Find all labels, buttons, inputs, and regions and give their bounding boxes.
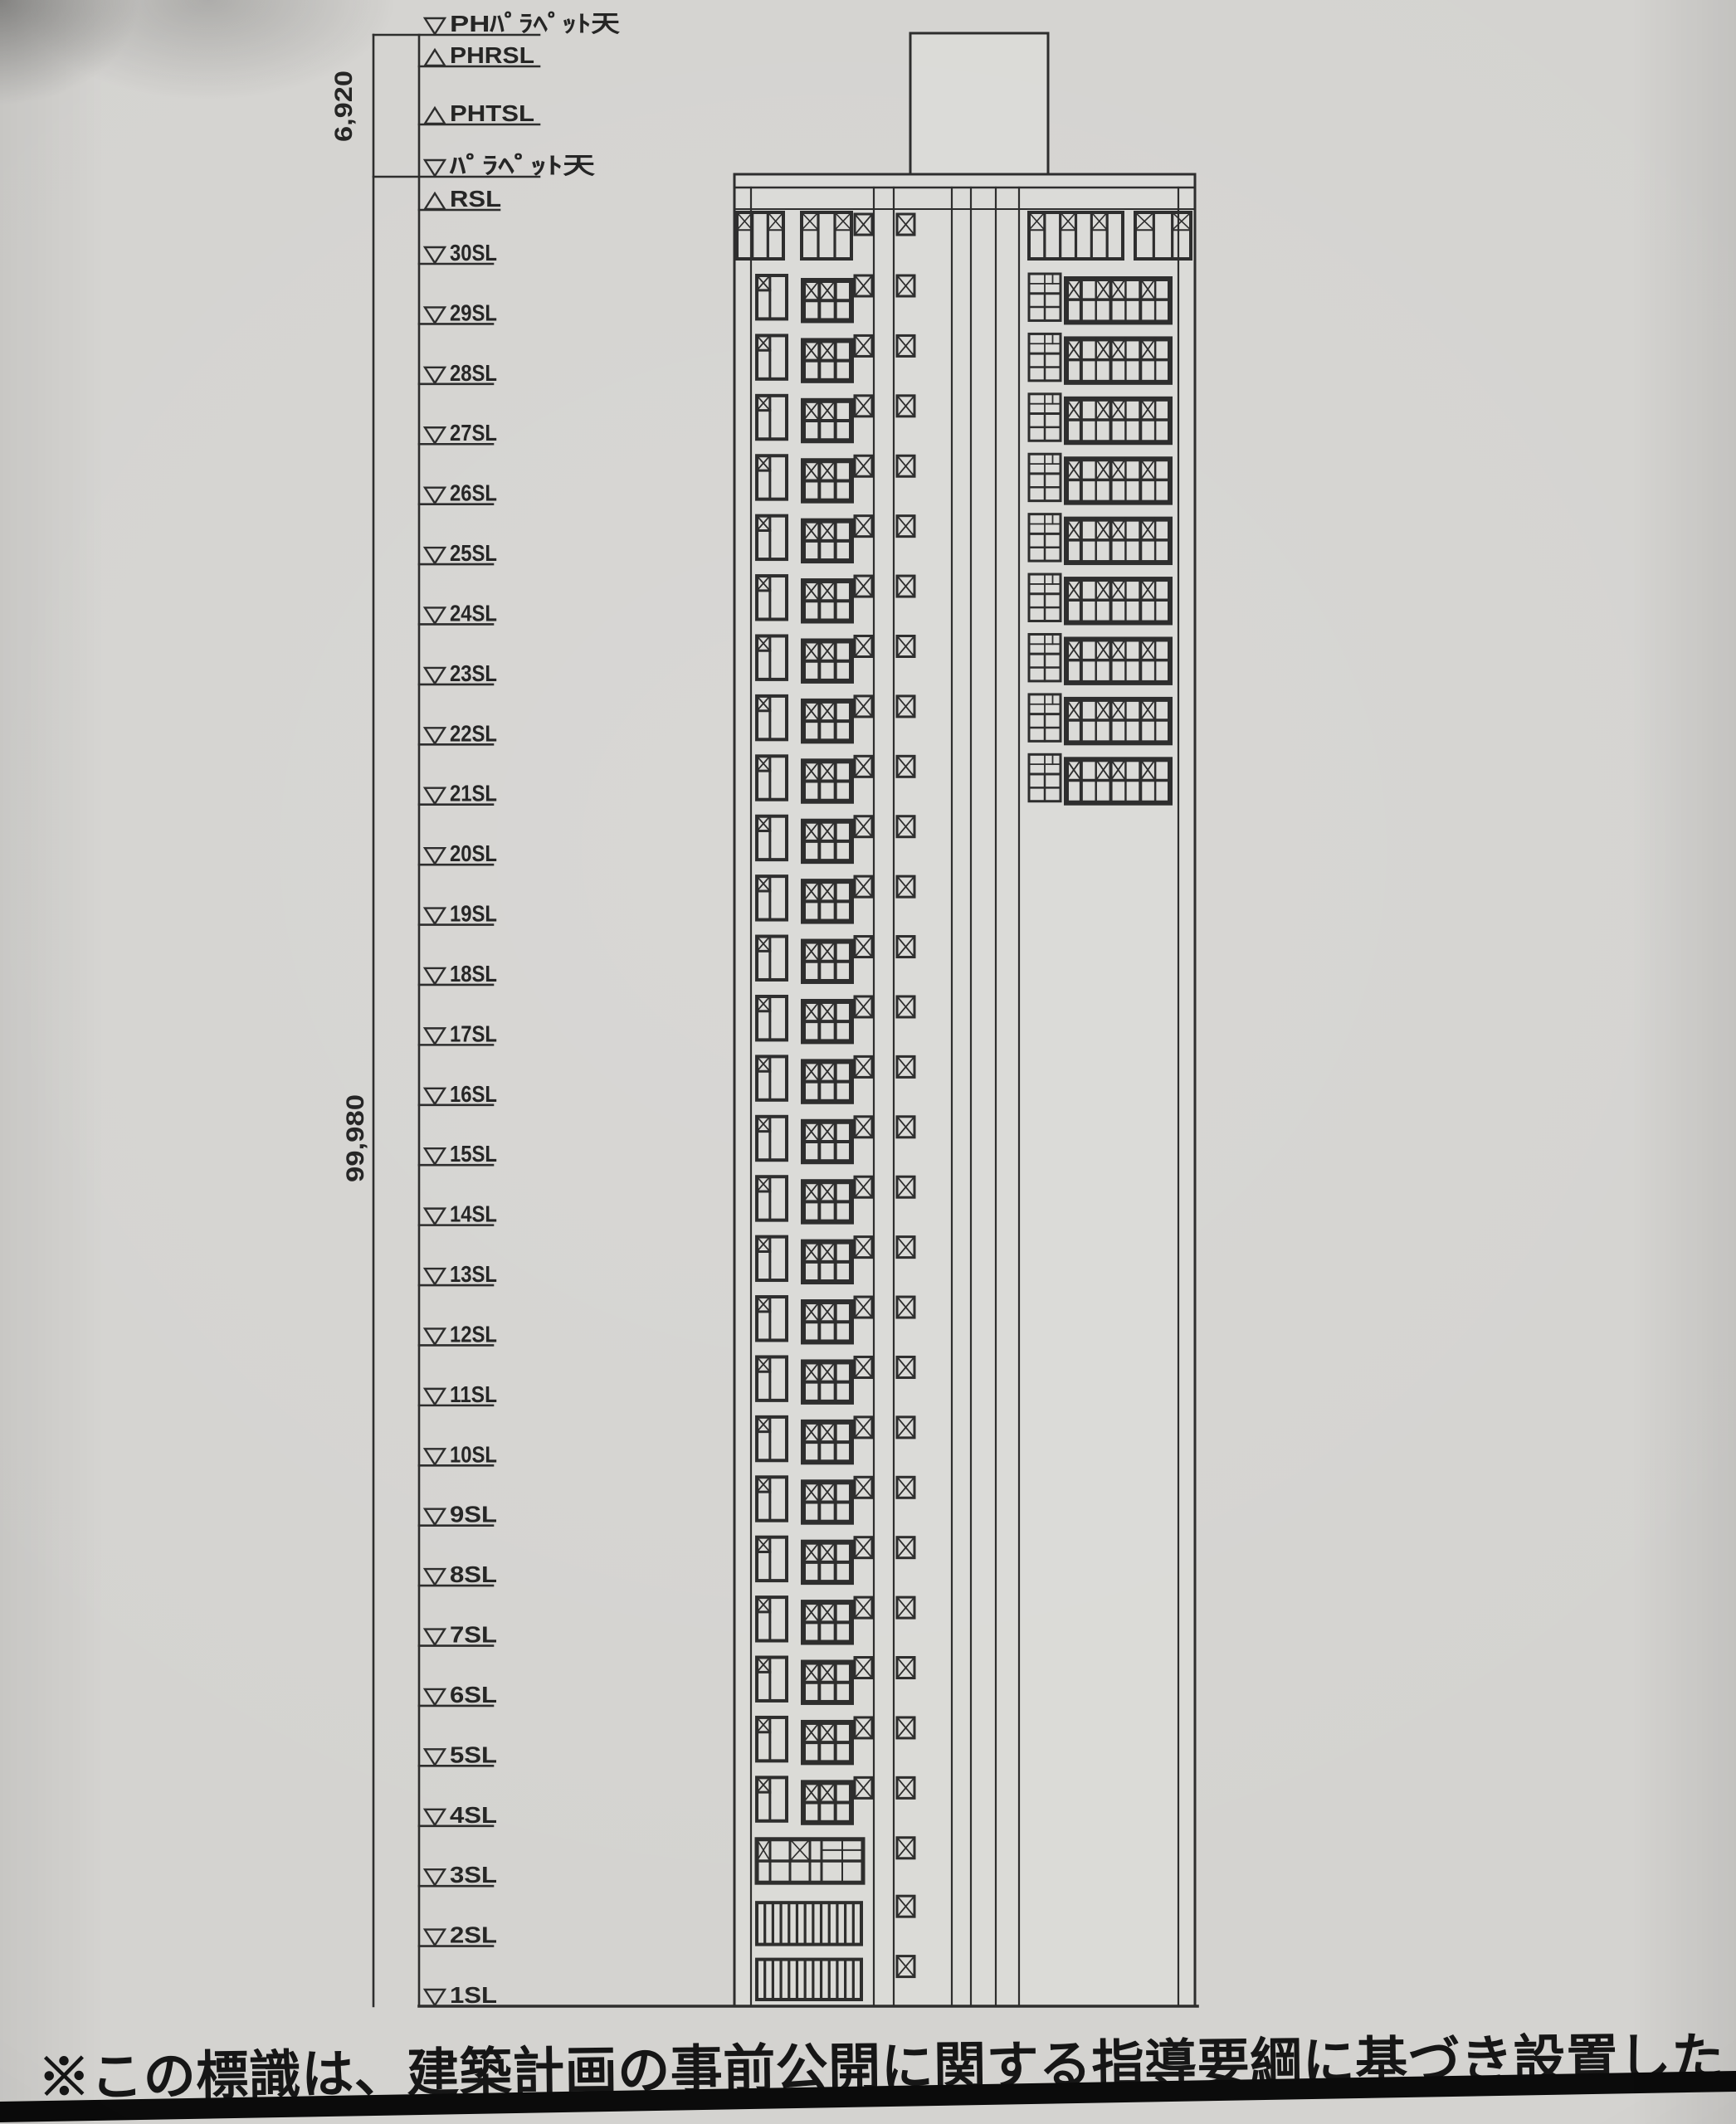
level-marker-down-triangle xyxy=(425,307,445,323)
level-label: 2SL xyxy=(450,1922,497,1948)
level-marker-down-triangle xyxy=(425,607,445,623)
level-label: PHﾊﾟﾗﾍﾟｯﾄ天 xyxy=(450,11,620,37)
level-ruler: PHﾊﾟﾗﾍﾟｯﾄ天PHRSLPHTSLﾊﾟﾗﾍﾟｯﾄ天RSL30SL29SL2… xyxy=(330,11,620,2008)
level-marker-down-triangle xyxy=(425,368,445,383)
level-label: 25SL xyxy=(450,540,497,566)
level-label: 6SL xyxy=(450,1682,497,1707)
level-marker-down-triangle xyxy=(425,668,445,684)
level-label: 4SL xyxy=(450,1802,497,1828)
level-label: 26SL xyxy=(450,480,497,506)
level-marker-up-triangle xyxy=(425,108,445,124)
ink-layer: PHﾊﾟﾗﾍﾟｯﾄ天PHRSLPHTSLﾊﾟﾗﾍﾟｯﾄ天RSL30SL29SL2… xyxy=(330,11,1197,2008)
level-marker-down-triangle xyxy=(425,247,445,263)
level-marker-down-triangle xyxy=(425,1749,445,1765)
level-marker-up-triangle xyxy=(425,193,445,209)
level-marker-up-triangle xyxy=(425,50,445,66)
level-marker-down-triangle xyxy=(425,1089,445,1104)
building-elevation xyxy=(419,33,1197,2006)
level-marker-down-triangle xyxy=(425,1328,445,1344)
level-label: 5SL xyxy=(450,1742,497,1767)
level-marker-down-triangle xyxy=(425,1689,445,1705)
level-marker-down-triangle xyxy=(425,1389,445,1405)
level-label: 3SL xyxy=(450,1862,497,1888)
level-marker-down-triangle xyxy=(425,488,445,504)
level-label: 15SL xyxy=(450,1141,497,1167)
level-marker-down-triangle xyxy=(425,427,445,443)
level-label: 23SL xyxy=(450,660,497,686)
level-label: 7SL xyxy=(450,1622,497,1648)
level-marker-down-triangle xyxy=(425,1209,445,1225)
level-label: 22SL xyxy=(450,720,497,746)
level-label: 19SL xyxy=(450,901,497,927)
construction-sign-photo: PHﾊﾟﾗﾍﾟｯﾄ天PHRSLPHTSLﾊﾟﾗﾍﾟｯﾄ天RSL30SL29SL2… xyxy=(0,0,1736,2124)
level-marker-down-triangle xyxy=(425,848,445,864)
level-label: 14SL xyxy=(450,1201,497,1227)
level-marker-down-triangle xyxy=(425,1869,445,1885)
level-marker-down-triangle xyxy=(425,18,445,34)
level-label: 1SL xyxy=(450,1982,497,2008)
level-marker-down-triangle xyxy=(425,1269,445,1284)
level-label: 30SL xyxy=(450,240,497,265)
level-label: 17SL xyxy=(450,1021,497,1046)
level-label: 21SL xyxy=(450,781,497,806)
penthouse-outline xyxy=(910,33,1048,174)
dimension-value-tower: 99,980 xyxy=(342,1094,369,1182)
level-marker-down-triangle xyxy=(425,788,445,804)
level-label: 24SL xyxy=(450,600,497,626)
level-label: PHRSL xyxy=(450,42,534,68)
level-marker-down-triangle xyxy=(425,1990,445,2005)
level-marker-down-triangle xyxy=(425,1028,445,1044)
level-marker-down-triangle xyxy=(425,909,445,924)
level-label: 28SL xyxy=(450,360,497,386)
level-label: 9SL xyxy=(450,1502,497,1527)
level-label: 20SL xyxy=(450,840,497,866)
level-label: 10SL xyxy=(450,1441,497,1467)
level-marker-down-triangle xyxy=(425,1509,445,1525)
level-label: 11SL xyxy=(450,1381,497,1407)
level-marker-down-triangle xyxy=(425,1810,445,1825)
level-label: 8SL xyxy=(450,1561,497,1587)
level-label: 13SL xyxy=(450,1261,497,1287)
level-label: 12SL xyxy=(450,1321,497,1347)
level-marker-down-triangle xyxy=(425,1630,445,1645)
level-label: PHTSL xyxy=(450,100,534,126)
elevation-drawing: PHﾊﾟﾗﾍﾟｯﾄ天PHRSLPHTSLﾊﾟﾗﾍﾟｯﾄ天RSL30SL29SL2… xyxy=(0,0,1736,2124)
level-label: 27SL xyxy=(450,420,497,446)
level-marker-down-triangle xyxy=(425,1449,445,1464)
level-marker-down-triangle xyxy=(425,1569,445,1585)
level-marker-down-triangle xyxy=(425,548,445,563)
level-label: 29SL xyxy=(450,300,497,325)
level-label: ﾊﾟﾗﾍﾟｯﾄ天 xyxy=(449,153,595,178)
level-marker-down-triangle xyxy=(425,968,445,984)
level-label: RSL xyxy=(450,186,501,212)
level-marker-down-triangle xyxy=(425,1930,445,1946)
drawing-root: PHﾊﾟﾗﾍﾟｯﾄ天PHRSLPHTSLﾊﾟﾗﾍﾟｯﾄ天RSL30SL29SL2… xyxy=(330,11,1197,2008)
level-label: 16SL xyxy=(450,1081,497,1107)
level-label: 18SL xyxy=(450,961,497,986)
level-marker-down-triangle xyxy=(425,160,445,176)
level-marker-down-triangle xyxy=(425,1148,445,1164)
level-marker-down-triangle xyxy=(425,728,445,743)
dimension-value-penthouse: 6,920 xyxy=(330,71,358,142)
